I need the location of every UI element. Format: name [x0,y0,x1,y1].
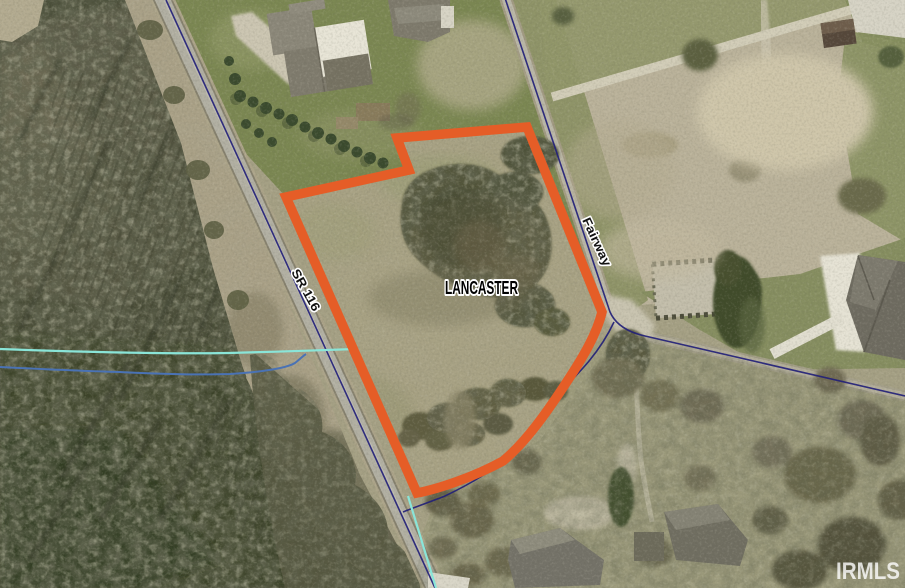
svg-text:LANCASTER: LANCASTER [445,278,518,298]
svg-text:IRMLS: IRMLS [836,558,900,585]
